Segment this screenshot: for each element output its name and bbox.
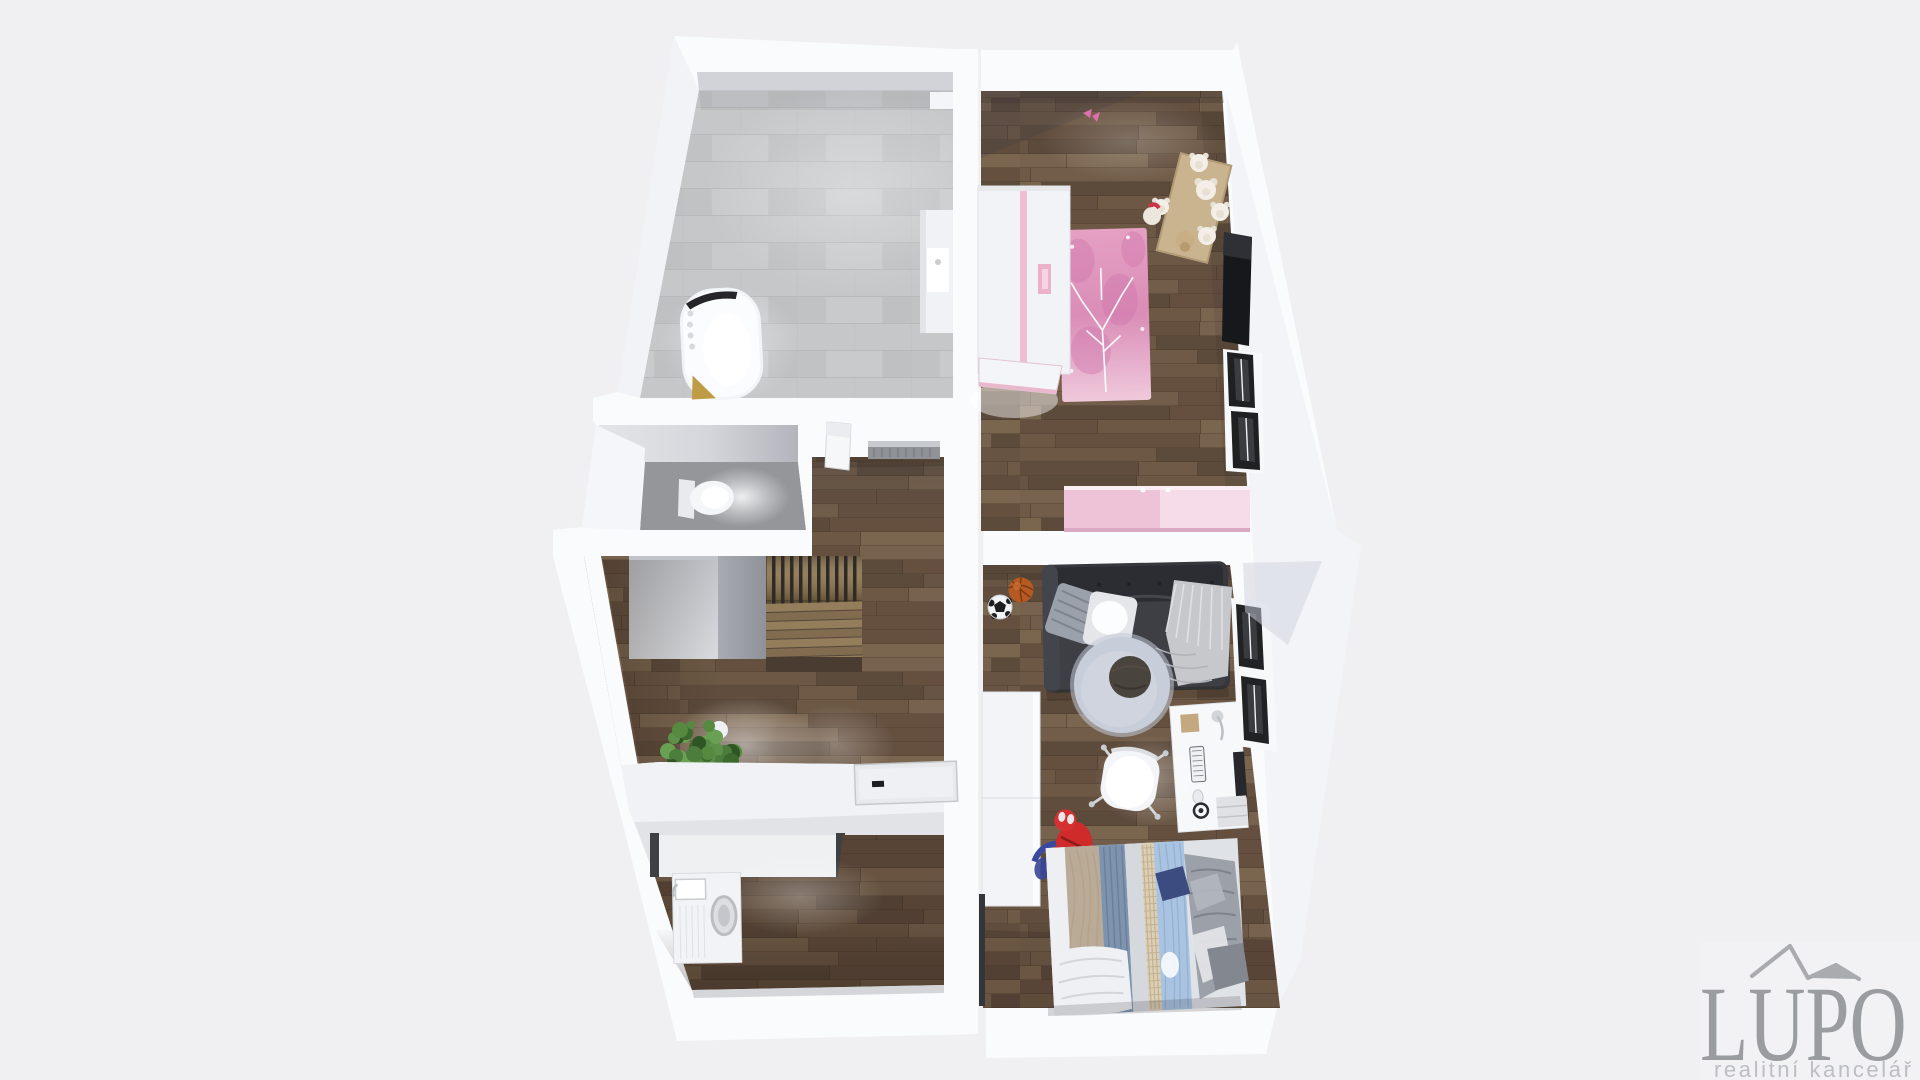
svg-text:realitní kancelář: realitní kancelář	[1714, 1057, 1914, 1080]
